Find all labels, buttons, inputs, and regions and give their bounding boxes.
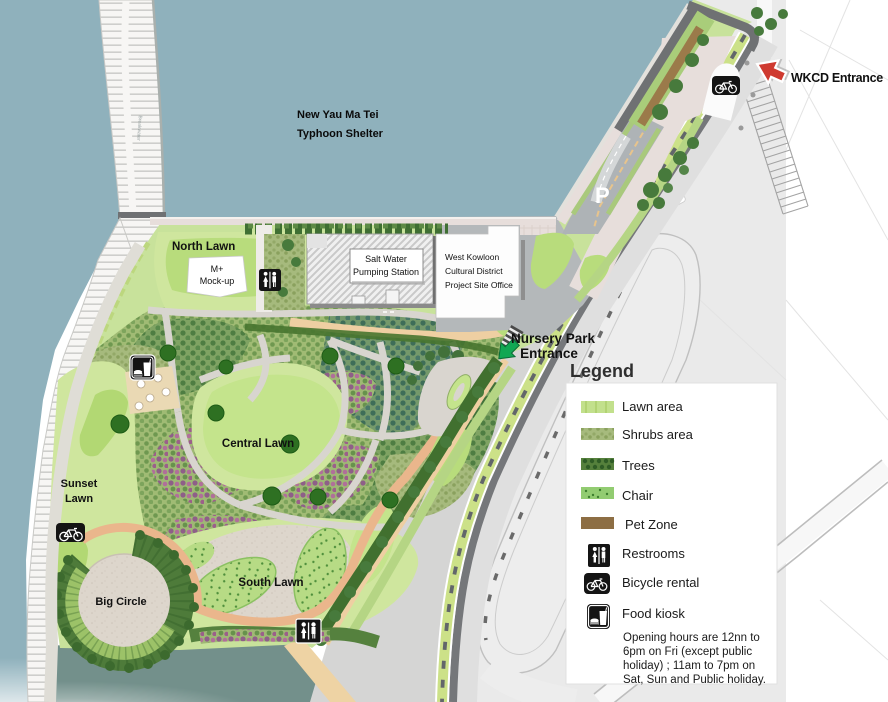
svg-text:Project Site Office: Project Site Office [445,280,513,290]
svg-text:Mock-up: Mock-up [200,276,235,286]
svg-text:6pm on Fri (except public: 6pm on Fri (except public [623,646,752,658]
svg-text:Pet Zone: Pet Zone [625,517,678,532]
svg-text:New Yau Ma Tei: New Yau Ma Tei [297,109,379,121]
svg-text:Food kiosk: Food kiosk [622,606,685,621]
svg-text:Entrance: Entrance [520,346,578,361]
svg-text:North Lawn: North Lawn [172,241,235,253]
svg-text:West Kowloon: West Kowloon [445,252,499,262]
svg-text:Cultural District: Cultural District [445,266,503,276]
svg-text:Big Circle: Big Circle [95,596,146,608]
svg-text:Lawn: Lawn [65,493,93,505]
svg-text:Restrooms: Restrooms [622,546,685,561]
svg-text:P: P [595,183,610,208]
svg-text:Typhoon Shelter: Typhoon Shelter [297,128,384,140]
svg-text:M+: M+ [211,264,224,274]
svg-text:Sunset: Sunset [61,478,98,490]
svg-text:Nursery Park: Nursery Park [511,331,596,346]
svg-text:Central Lawn: Central Lawn [222,438,294,450]
svg-text:South Lawn: South Lawn [238,577,303,589]
svg-text:Shrubs area: Shrubs area [622,427,694,442]
svg-text:holiday) ; 11am to 7pm on: holiday) ; 11am to 7pm on [623,660,755,672]
svg-text:Pumping Station: Pumping Station [353,267,419,277]
svg-text:Bicycle rental: Bicycle rental [622,575,699,590]
svg-text:WKCD Entrance: WKCD Entrance [791,71,883,85]
svg-text:Trees: Trees [622,458,655,473]
svg-text:Legend: Legend [570,361,634,381]
svg-text:Sat, Sun and Public holiday.: Sat, Sun and Public holiday. [623,674,766,686]
svg-text:Opening hours are 12nn to: Opening hours are 12nn to [623,632,760,644]
svg-text:Salt Water: Salt Water [365,254,407,264]
svg-text:Lawn area: Lawn area [622,399,683,414]
svg-text:Chair: Chair [622,488,654,503]
